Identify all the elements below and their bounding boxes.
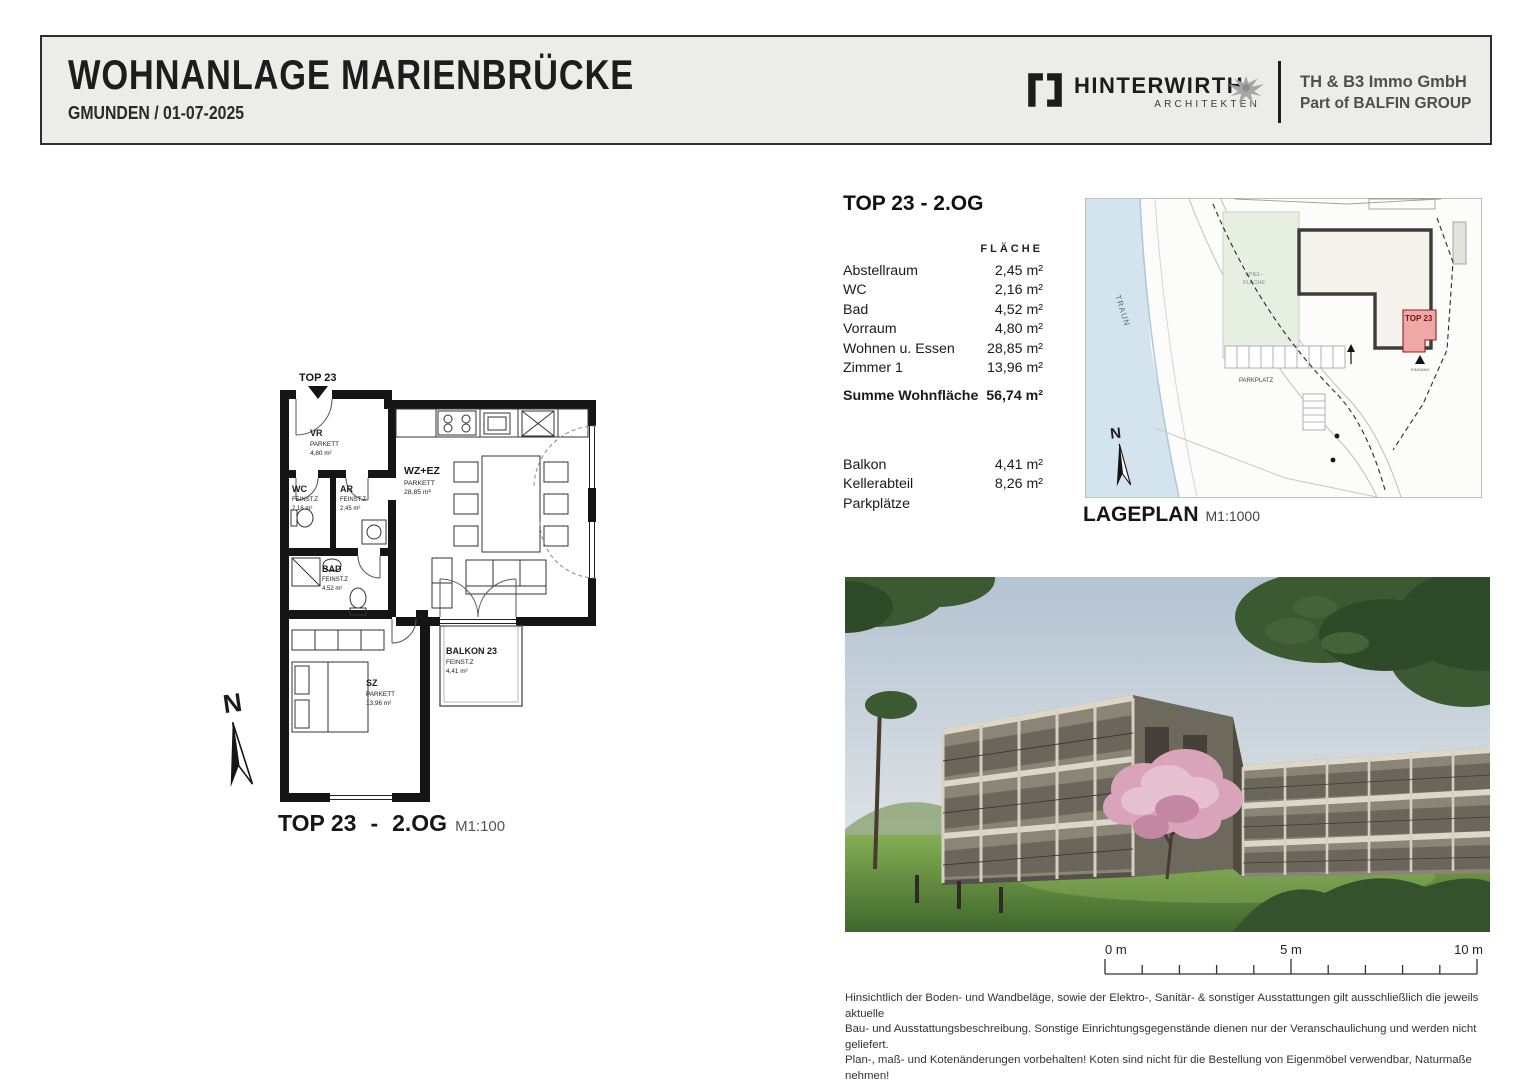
table-row: Kellerabteil 8,26 m²: [843, 475, 1043, 494]
room-area: 4,41 m²: [446, 668, 468, 675]
total-value: 56,74 m²: [986, 387, 1043, 406]
extra-label: Kellerabteil: [843, 475, 913, 494]
disclaimer-line: Hinsichtlich der Boden- und Wandbeläge, …: [845, 991, 1500, 1022]
eagle-emblem-icon: [1226, 71, 1266, 112]
room-finish: FEINST.Z: [292, 497, 318, 503]
table-row: WC 2,16 m²: [843, 281, 1043, 300]
unit-heading: TOP 23 - 2.OG: [843, 192, 1043, 216]
room-area: 2,16 m²: [292, 506, 312, 512]
total-label: Summe Wohnfläche: [843, 387, 978, 406]
unit-highlight-label: TOP 23: [1405, 314, 1433, 323]
extra-value: 8,26 m²: [995, 475, 1043, 494]
room-name: BAD: [322, 564, 342, 574]
disclaimer: Hinsichtlich der Boden- und Wandbeläge, …: [845, 991, 1500, 1085]
siteplan-caption-text: LAGEPLAN: [1083, 503, 1199, 526]
siteplan-caption-scale: M1:1000: [1206, 508, 1260, 524]
caption-dash: -: [370, 810, 378, 836]
room-label: Bad: [843, 301, 868, 320]
north-label: N: [1109, 425, 1122, 443]
extras-table: Balkon 4,41 m² Kellerabteil 8,26 m² Park…: [843, 456, 1043, 514]
extra-label: Parkplätze: [843, 495, 910, 514]
room-area: 28,85 m²: [404, 489, 432, 496]
parking-label: PARKPLATZ: [1239, 378, 1273, 384]
floorplan-drawing: TOP 23: [270, 360, 610, 815]
room-label: Abstellraum: [843, 262, 918, 281]
room-value: 2,45 m²: [995, 262, 1043, 281]
project-title: WOHNANLAGE MARIENBRÜCKE: [68, 51, 634, 99]
room-label: WC: [843, 281, 867, 300]
room-name: WZ+EZ: [404, 465, 440, 477]
room-area: 4,52 m²: [322, 586, 342, 592]
room-name: SZ: [366, 678, 378, 688]
area-column-header: FLÄCHE: [843, 243, 1043, 255]
terrace-door-swings: [534, 426, 596, 578]
extra-label: Balkon: [843, 456, 886, 475]
table-row: Vorraum 4,80 m²: [843, 320, 1043, 339]
north-label: N: [221, 687, 244, 719]
room-name: BALKON 23: [446, 646, 497, 656]
room-name: VR: [310, 428, 323, 438]
unit-info-panel: TOP 23 - 2.OG FLÄCHE Abstellraum 2,45 m²…: [843, 192, 1043, 514]
balcony-outline: [440, 626, 522, 706]
siteplan-caption: LAGEPLANM1:1000: [1083, 503, 1260, 527]
room-value: 28,85 m²: [987, 340, 1043, 359]
floorplan-unit-label: TOP 23: [299, 372, 337, 384]
room-value: 13,96 m²: [987, 359, 1043, 378]
plan-sheet: WOHNANLAGE MARIENBRÜCKE GMUNDEN / 01-07-…: [0, 0, 1536, 1087]
company-name: TH & B3 Immo GmbH: [1300, 71, 1471, 93]
disclaimer-line: Bau- und Ausstattungsbeschreibung. Sonst…: [845, 1022, 1500, 1053]
total-row: Summe Wohnfläche 56,74 m²: [843, 387, 1043, 406]
building-rendering-image: [845, 577, 1490, 932]
caption-scale: M1:100: [455, 818, 505, 835]
play-area-label-2: FLÄCHE: [1243, 279, 1265, 286]
room-value: 2,16 m²: [995, 281, 1043, 300]
table-row: Zimmer 1 13,96 m²: [843, 359, 1043, 378]
entrance-label: EINGANG: [1411, 367, 1429, 372]
scale-label-0: 0 m: [1105, 942, 1127, 957]
door-swings: [296, 399, 516, 643]
company-group: Part of BALFIN GROUP: [1300, 93, 1471, 115]
room-finish: FEINST.Z: [446, 659, 474, 666]
room-area: 13,96 m²: [366, 700, 391, 707]
room-finish: PARKETT: [310, 441, 339, 448]
scale-bar: 0 m 5 m 10 m: [1095, 940, 1495, 982]
table-row: Parkplätze: [843, 495, 1043, 514]
architect-name: HINTERWIRTH: [1074, 73, 1244, 99]
room-value: 4,80 m²: [995, 320, 1043, 339]
company-block: TH & B3 Immo GmbH Part of BALFIN GROUP: [1300, 71, 1471, 115]
sheet-header: WOHNANLAGE MARIENBRÜCKE GMUNDEN / 01-07-…: [40, 35, 1492, 145]
siteplan-map: TRAUN An der Marienbrücke SPIEL- FLÄCHE …: [1085, 198, 1482, 498]
table-row: Wohnen u. Essen 28,85 m²: [843, 340, 1043, 359]
extra-value: 4,41 m²: [995, 456, 1043, 475]
scale-ticks: [1105, 959, 1477, 974]
room-name: WC: [292, 484, 307, 494]
room-finish: PARKETT: [404, 480, 435, 487]
room-area: 2,45 m²: [340, 506, 360, 512]
scale-label-5: 5 m: [1280, 942, 1302, 957]
room-label: Wohnen u. Essen: [843, 340, 955, 359]
room-label: Vorraum: [843, 320, 897, 339]
area-table: Abstellraum 2,45 m² WC 2,16 m² Bad 4,52 …: [843, 262, 1043, 407]
header-divider: [1278, 61, 1281, 123]
caption-level: 2.OG: [392, 810, 447, 836]
room-name: AR: [340, 484, 353, 494]
room-finish: FEINST.Z: [340, 497, 366, 503]
floorplan-north-arrow: N: [205, 686, 267, 794]
table-row: Balkon 4,41 m²: [843, 456, 1043, 475]
floorplan-caption: TOP 23-2.OGM1:100: [278, 810, 505, 837]
table-row: Bad 4,52 m²: [843, 301, 1043, 320]
disclaimer-line: Plan-, maß- und Kotenänderungen vorbehal…: [845, 1053, 1500, 1084]
room-area: 4,80 m²: [310, 450, 332, 457]
caption-unit: TOP 23: [278, 810, 356, 836]
project-subtitle: GMUNDEN / 01-07-2025: [68, 103, 244, 124]
room-finish: FEINST.Z: [322, 577, 348, 583]
room-finish: PARKETT: [366, 691, 395, 698]
scale-label-10: 10 m: [1454, 942, 1483, 957]
table-row: Abstellraum 2,45 m²: [843, 262, 1043, 281]
room-value: 4,52 m²: [995, 301, 1043, 320]
room-label: Zimmer 1: [843, 359, 903, 378]
entry-marker-icon: [308, 386, 328, 399]
hinterwirth-logo-icon: [1024, 69, 1066, 116]
